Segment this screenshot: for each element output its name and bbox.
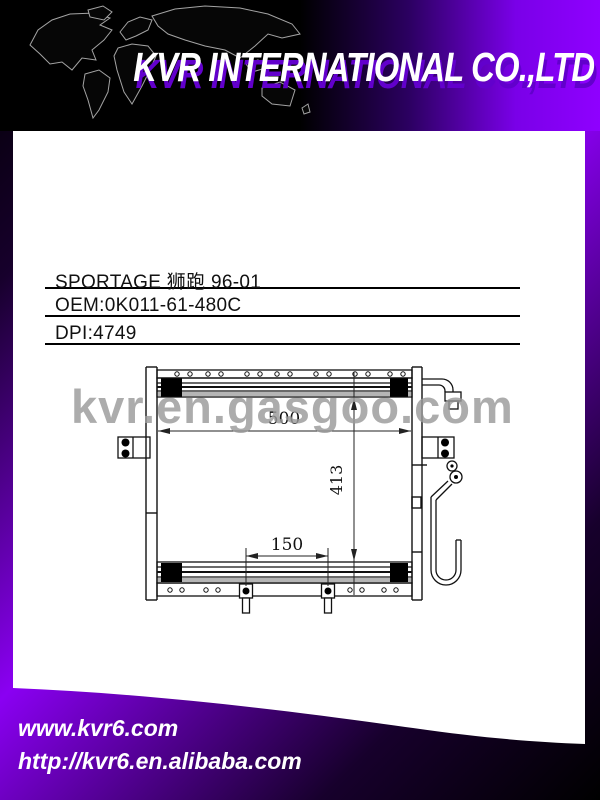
- header-banner: KVR INTERNATIONAL CO.,LTD: [0, 0, 600, 131]
- mounting-pegs: [240, 584, 335, 613]
- bottom-header-tank: [157, 562, 412, 596]
- footer-site-kvr6: www.kvr6.com: [18, 712, 302, 745]
- watermark-text: kvr.en.gasgoo.com: [71, 379, 514, 434]
- mounting-brackets: [118, 437, 454, 458]
- footer-links: www.kvr6.com http://kvr6.en.alibaba.com: [18, 712, 302, 778]
- company-title: KVR INTERNATIONAL CO.,LTD: [133, 44, 594, 91]
- page: KVR INTERNATIONAL CO.,LTD SPORTAGE 狮跑 96…: [0, 0, 600, 800]
- dim-150-label: 150: [271, 535, 303, 555]
- product-card: SPORTAGE 狮跑 96-01 OEM:0K011-61-480C DPI:…: [13, 131, 585, 686]
- footer-site-alibaba: http://kvr6.en.alibaba.com: [18, 745, 302, 778]
- dim-413-label: 413: [327, 465, 346, 496]
